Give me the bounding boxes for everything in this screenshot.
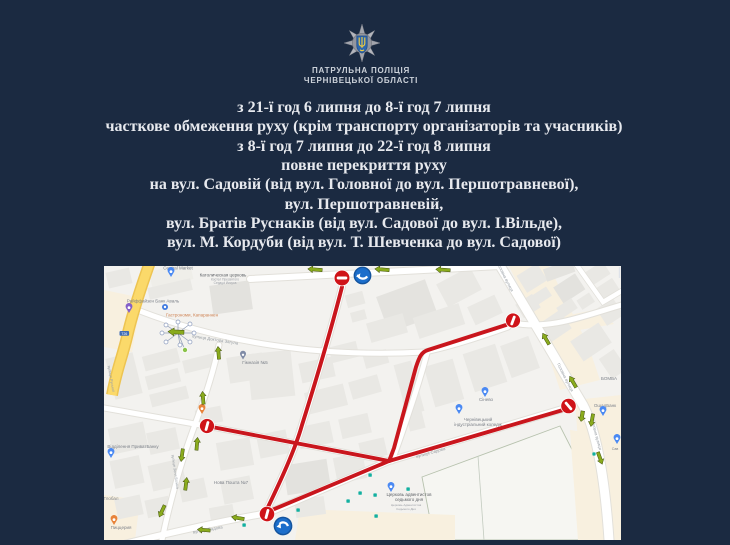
svg-text:Глобал: Глобал xyxy=(104,496,119,501)
svg-text:Райффайзен Банк Аваль: Райффайзен Банк Аваль xyxy=(127,298,180,304)
svg-text:Сінево: Сінево xyxy=(479,397,494,402)
svg-text:Нова Пошта №7: Нова Пошта №7 xyxy=(214,480,249,485)
svg-text:Сердца Иисуса: Сердца Иисуса xyxy=(214,281,237,285)
svg-text:Відділення ПриватБанку: Відділення ПриватБанку xyxy=(107,444,159,449)
svg-text:Т26: Т26 xyxy=(121,332,127,336)
svg-text:Сав: Сав xyxy=(612,447,619,451)
svg-text:БОМБА: БОМБА xyxy=(601,376,617,381)
svg-text:Гастрономи, Капараннен: Гастрономи, Капараннен xyxy=(166,313,219,318)
svg-text:Пиццерия: Пиццерия xyxy=(111,525,132,530)
svg-text:індустріальний коледж: індустріальний коледж xyxy=(454,421,501,427)
svg-text:Седьмого Дня: Седьмого Дня xyxy=(396,507,416,511)
svg-text:Гімназія №5: Гімназія №5 xyxy=(242,360,268,365)
svg-text:седьмого дня: седьмого дня xyxy=(395,497,424,502)
